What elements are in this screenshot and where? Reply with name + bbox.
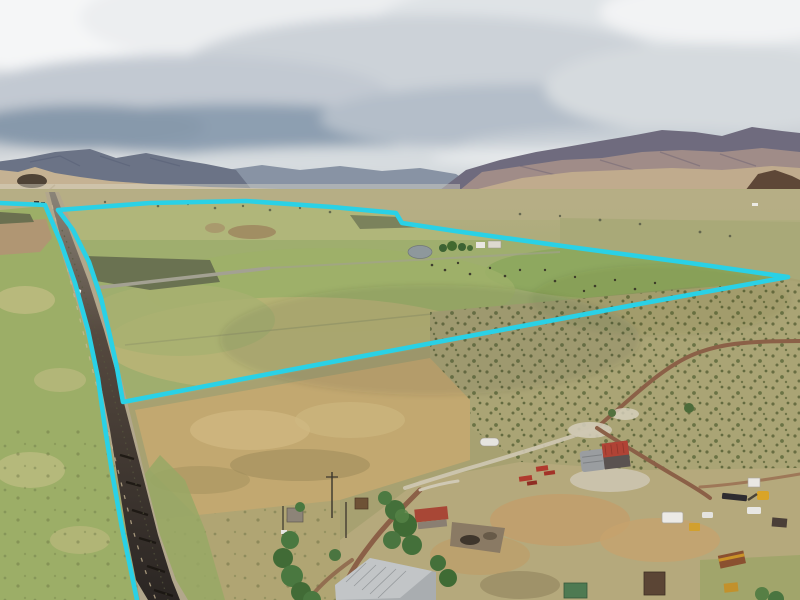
white-tank: [480, 438, 499, 446]
bare-dirt-patch: [228, 225, 276, 239]
green-roof-shed: [564, 583, 587, 598]
wood-shed: [355, 498, 368, 509]
yellow-trailer: [724, 582, 739, 592]
yellow-loader: [689, 523, 700, 531]
brown-trailer: [644, 572, 665, 595]
white-truck: [747, 507, 761, 514]
dark-trailer: [772, 517, 788, 527]
white-car: [702, 512, 713, 518]
aerial-photo-canvas: [0, 0, 800, 600]
stock-pond: [408, 246, 432, 259]
distant-building: [752, 203, 758, 206]
white-shed: [748, 478, 760, 487]
red-roof-cabin: [414, 506, 449, 529]
aerial-photo: [0, 0, 800, 600]
white-rv-trailer: [662, 512, 683, 523]
